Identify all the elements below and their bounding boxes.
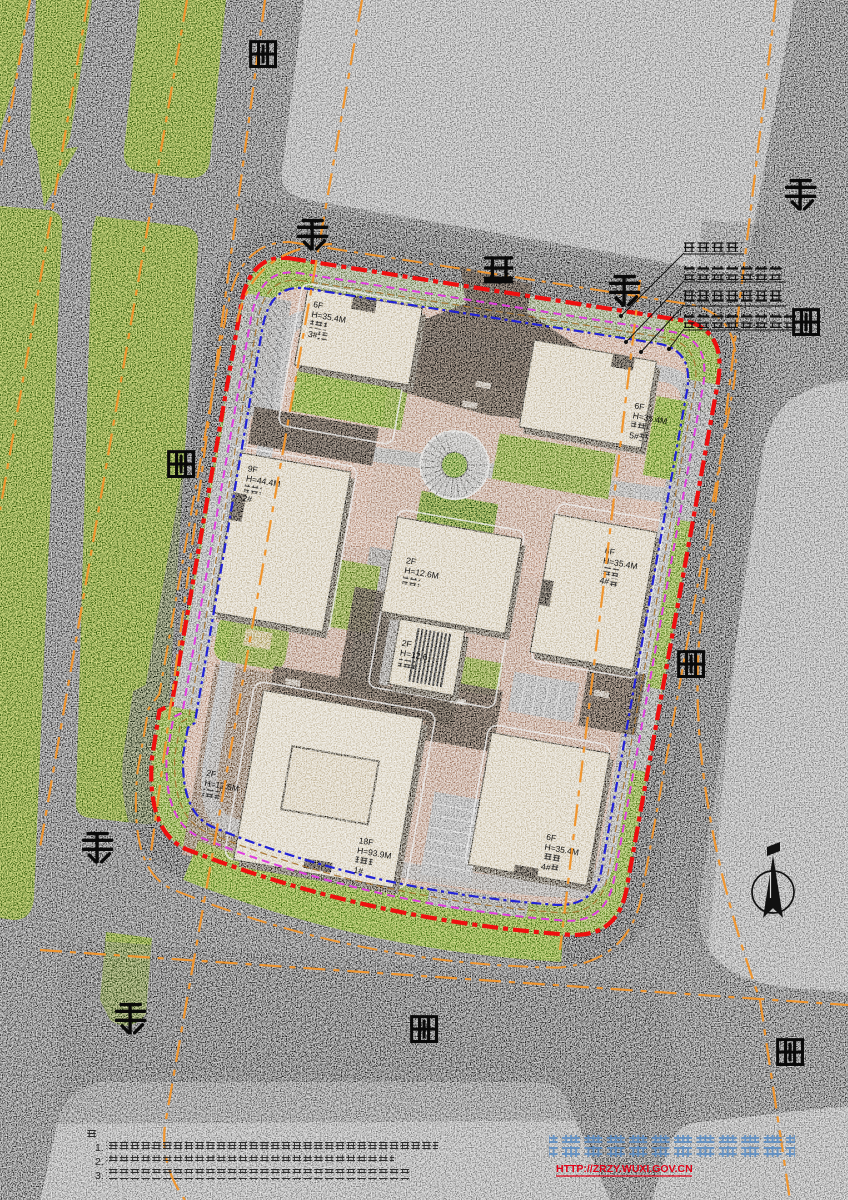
- svg-text:1#: 1#: [353, 865, 364, 877]
- svg-text:2#: 2#: [242, 493, 253, 505]
- svg-text:2.: 2.: [95, 1156, 104, 1168]
- svg-text:3.: 3.: [95, 1170, 104, 1182]
- svg-text:4#: 4#: [540, 861, 551, 873]
- svg-text:HTTP://ZRZY.WUXI.GOV.CN: HTTP://ZRZY.WUXI.GOV.CN: [556, 1163, 693, 1175]
- svg-text:1.: 1.: [95, 1142, 104, 1154]
- svg-text:5#: 5#: [629, 430, 640, 442]
- svg-text:3#: 3#: [307, 329, 318, 341]
